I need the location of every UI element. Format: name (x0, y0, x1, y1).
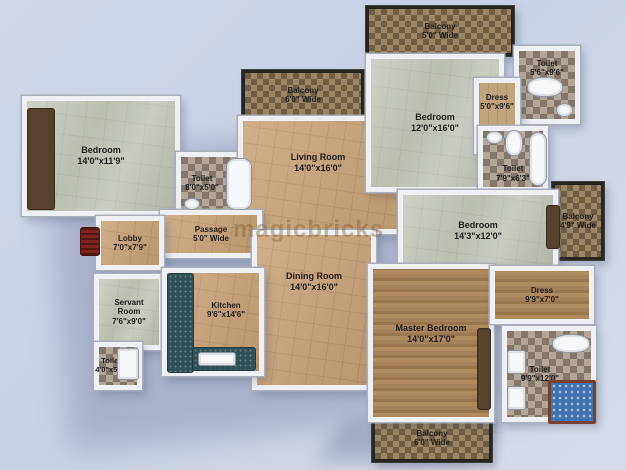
room-dims: 6'0" Wide (414, 438, 450, 447)
room-label: Servant Room (103, 298, 155, 317)
toilet-wc (505, 130, 523, 156)
bathtub (226, 158, 252, 210)
room-passage: Passage 5'0" Wide (160, 210, 262, 258)
room-label: Dining Room (286, 271, 342, 282)
room-dims: 9'6"x14'6" (207, 310, 245, 319)
room-balcony-top: Balcony 5'0" Wide (366, 6, 514, 56)
room-label: Bedroom (415, 112, 455, 123)
room-dining: Dining Room 14'0"x16'0" (252, 230, 376, 390)
room-label: Kitchen (211, 301, 240, 310)
room-dims: 4'9" Wide (560, 221, 596, 230)
room-label: Balcony (424, 22, 455, 31)
washbasin (507, 350, 526, 374)
room-dims: 9'9"x7'0" (525, 295, 559, 304)
toilet-wc (527, 77, 563, 97)
room-dims: 7'9"x6'3" (496, 174, 530, 183)
room-dims: 7'0"x7'9" (113, 243, 147, 252)
floor-plan: Balcony 6'0" Wide Balcony 5'0" Wide Balc… (0, 0, 626, 470)
kitchen-counter (167, 273, 194, 373)
kitchen-sink (198, 352, 236, 366)
room-balcony-living: Balcony 6'0" Wide (242, 70, 364, 120)
room-label: Toilet (503, 164, 524, 173)
room-label: Dress (531, 286, 553, 295)
room-master-bedroom: Master Bedroom 14'0"x17'0" (368, 264, 494, 422)
room-dims: 12'0"x16'0" (411, 123, 459, 134)
washbasin (486, 131, 503, 144)
room-label: Bedroom (458, 220, 498, 231)
room-label: Balcony (562, 212, 593, 221)
room-dims: 8'0"x5'0" (185, 183, 219, 192)
room-label: Balcony (416, 429, 447, 438)
room-dims: 5'0" Wide (422, 31, 458, 40)
room-label: Balcony (287, 86, 318, 95)
entrance-door (80, 227, 100, 256)
room-dims: 14'0"x17'0" (407, 334, 455, 345)
balcony-door (546, 205, 560, 249)
room-label: Toilet (537, 59, 558, 68)
room-label: Bedroom (81, 145, 121, 156)
room-label: Passage (195, 225, 227, 234)
room-dims: 14'0"x16'0" (294, 163, 342, 174)
room-dims: 7'6"x9'0" (112, 317, 146, 326)
washbasin (556, 103, 573, 117)
room-dims: 14'3"x12'0" (454, 231, 502, 242)
jacuzzi (548, 380, 596, 424)
wardrobe (27, 108, 55, 210)
room-label: Dress (486, 93, 508, 102)
washbasin (184, 198, 200, 210)
room-dims: 14'0"x11'9" (77, 156, 124, 167)
room-label: Toilet (530, 365, 551, 374)
room-bedroom-3: Bedroom 14'3"x12'0" (398, 190, 558, 272)
room-label: Master Bedroom (395, 323, 466, 334)
wardrobe (477, 328, 491, 410)
bathtub (529, 132, 547, 186)
room-dims: 5'0"x9'6" (480, 102, 514, 111)
washing-machine (117, 348, 139, 380)
washbasin (507, 386, 526, 410)
room-lobby: Lobby 7'0"x7'9" (96, 216, 164, 270)
room-dress-2: Dress 9'9"x7'0" (490, 266, 594, 324)
room-label: Living Room (291, 152, 346, 163)
room-dims: 5'0" Wide (193, 234, 229, 243)
room-label: Toilet (192, 174, 213, 183)
room-dims: 14'0"x16'0" (290, 282, 338, 293)
toilet-wc (552, 334, 590, 353)
room-dims: 6'0" Wide (285, 95, 321, 104)
room-label: Lobby (118, 234, 142, 243)
room-servant: Servant Room 7'6"x9'0" (94, 274, 164, 350)
